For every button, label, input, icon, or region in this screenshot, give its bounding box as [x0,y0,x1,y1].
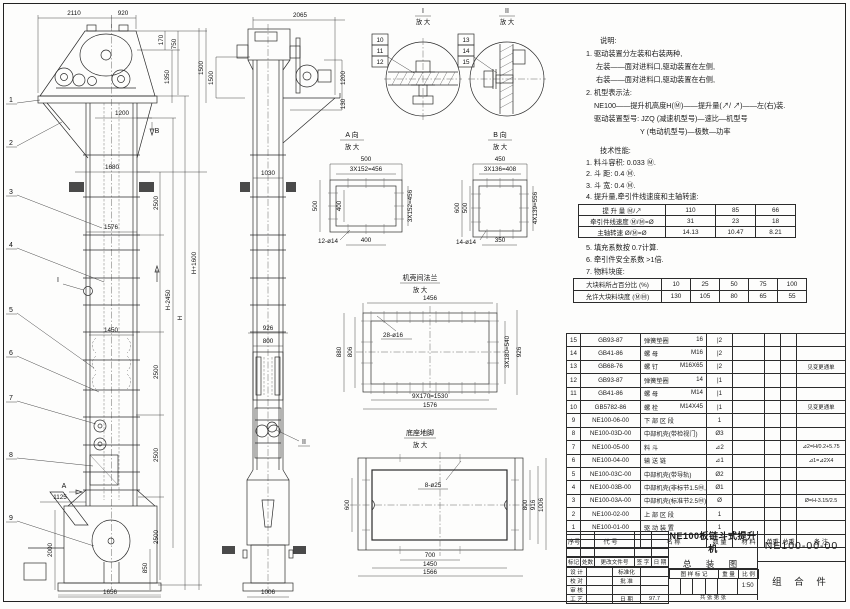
dim-label: 1456 [423,295,438,302]
mark-box [669,579,681,594]
bom-name: 螺 钉 [644,362,658,371]
bom-cell [797,387,846,400]
balloon-label: 12 [376,59,384,66]
tech-item: 5. 填充系数按 0.7计算. [586,242,664,254]
capacity-cell: 31 [666,216,716,227]
lump-cell: 100 [778,279,807,291]
dim-label: 3X152=456 [350,166,383,173]
rev-cell [581,532,595,540]
part-type-cell: 组 合 件 [758,562,845,600]
bom-cell: Ø2 [707,467,733,480]
rev-cell [595,532,635,540]
tech-item: 3. 斗 宽: 0.4 Ⓜ. [586,180,699,192]
bom-cell: 上 部 区 段 [641,508,707,521]
bom-cell [781,347,797,360]
bom-spec: M14X45 [680,403,703,412]
sig-value [641,577,669,586]
lump-cell: 25 [691,279,720,291]
dim-label: 9X170=1530 [412,393,448,400]
bom-cell [765,360,781,373]
dim-label: 3X136=408 [484,166,517,173]
capacity-cell: 66 [756,205,796,216]
sig-label: 工 艺 [567,595,587,604]
dim-label: 750 [171,38,178,49]
dim-label: 1200 [115,110,130,117]
stamp-cell: 重 量 [719,570,739,579]
bom-cell [797,374,846,387]
bom-cell: 8 [567,427,581,440]
bom-cell [733,467,765,480]
tech-item: 6. 牵引件安全系数 >1倍. [586,254,664,266]
dim-label: 500 [361,156,372,163]
balloon-label: 13 [462,37,470,44]
tech-section: 技术性能: 1. 料斗容积: 0.033 Ⓜ. 2. 斗 距: 0.4 Ⓜ. 3… [578,145,699,203]
bom-cell [797,481,846,494]
bom-cell [765,427,781,440]
balloon-label: 1 [9,97,13,104]
bom-cell [781,334,797,347]
bom-cell: 9 [567,414,581,427]
bom-cell [733,387,765,400]
lump-cell: 大块料所占百分比 (%) [574,279,662,291]
view-subtitle: 放 大 [493,142,508,151]
bom-cell [733,508,765,521]
sig-value [587,595,613,604]
dim-label: 880 [336,346,343,357]
section-marker-b: B [155,128,160,135]
bom-cell [781,508,797,521]
bom-cell: NE100-05-00 [581,441,641,454]
bom-cell [797,414,846,427]
bom-cell: GB68-76 [581,360,641,373]
bom-name: 弹簧垫圈 [644,336,669,345]
rev-cell [567,532,581,540]
dim-label: 920 [118,10,129,17]
bom-cell: 螺 钉M16X65 [641,360,707,373]
dim-label: 1350 [164,70,171,85]
bom-cell [765,467,781,480]
lump-size-table: 大块料所占百分比 (%) 10 25 50 75 100 允许大块料块度 (ⓂⓂ… [573,278,807,303]
notes-title: 说明: [600,34,846,47]
dim-label: 700 [425,552,436,559]
bom-spec: M14 [691,389,703,398]
sig-value [641,568,669,577]
bom-cell: NE100-06-00 [581,414,641,427]
dim-label: 400 [336,200,343,211]
sig-label: 批 准 [613,577,641,586]
bom-cell [781,400,797,413]
view-title: 机壳间法兰 [403,273,438,282]
bom-row: 5NE100-03C-00中部机壳(带导轨)Ø2 [567,467,846,480]
dim-label: H [177,315,184,320]
title-block: 标记 处数 更改文件号 签 字 日 期 设 计标准化 校 对批 准 审 核 工 … [566,531,845,600]
table-row: 牵引件线速度 Ⓜ/Ⓜ=Ø 31 23 18 [579,216,796,227]
bom-name: 弹簧垫圈 [644,376,669,385]
bom-cell: ⊿2 [707,441,733,454]
capacity-table: 提 升 量 Ⓜ/↗ 110 85 66 牵引件线速度 Ⓜ/Ⓜ=Ø 31 23 1… [578,204,796,238]
lump-cell: 130 [662,291,691,303]
detail-title: I [422,8,424,15]
signature-rows: 设 计标准化 校 对批 准 审 核 工 艺日 期97.7 [566,567,669,604]
bom-cell [781,374,797,387]
mark-box [706,579,717,594]
capacity-cell: 14.13 [666,227,716,238]
stamp-cell: 比 例 [739,570,759,579]
capacity-cell: 提 升 量 Ⓜ/↗ [579,205,666,216]
sig-value [587,568,613,577]
rev-header-cell: 更改文件号 [595,558,635,567]
view-subtitle: 放 大 [345,142,360,151]
bom-cell: 1 [707,508,733,521]
bom-spec: 14 [696,376,703,385]
dim-label: 2500 [153,365,160,380]
bom-cell: 5 [567,467,581,480]
rev-header-cell: 签 字 [635,558,652,567]
lump-cell: 允许大块料块度 (ⓂⓂ) [574,291,662,303]
capacity-cell: 主轴转速 Ø/Ⓜ=Ø [579,227,666,238]
rev-cell [635,548,652,556]
stamp-cell: 图 样 标 记 [670,570,719,579]
lump-cell: 75 [749,279,778,291]
detail-title: II [505,8,509,15]
title-block-left: 标记 处数 更改文件号 签 字 日 期 设 计标准化 校 对批 准 审 核 工 … [566,531,668,600]
title-block-right: NE100-00-00 组 合 件 [757,531,845,600]
bom-cell: 1 [707,414,733,427]
bom-cell: |2 [707,360,733,373]
dim-label: 3X152=456 [407,189,414,222]
bom-cell: |1 [707,374,733,387]
lump-cell: 55 [778,291,807,303]
note-line: 右装——面对进料口,驱动装置在右侧, [596,73,846,86]
bom-cell [765,508,781,521]
dim-label: 1200 [340,71,347,86]
hole-callout: 12-ø14 [318,238,338,245]
rev-cell [581,548,595,556]
product-title: NE100板链斗式提升机 [669,529,757,555]
bom-cell: GB93-87 [581,334,641,347]
bom-cell: NE100-03B-00 [581,481,641,494]
bom-cell: 7 [567,441,581,454]
bom-cell: Ø=H-3.15/2.5 [797,494,846,507]
note-line: 驱动装置型号: JZQ (减速机型号)—速比—机型号 [594,112,846,125]
scale-value: 1:50 [738,579,757,594]
note-line: 1. 驱动装置分左装和右装两种, [586,47,846,60]
bom-cell: |2 [707,334,733,347]
balloon-label: 15 [462,59,470,66]
bom-cell: GB93-87 [581,374,641,387]
sig-value [587,577,613,586]
sig-label [613,586,641,595]
bom-cell: 2 [567,508,581,521]
balloon-label: 6 [9,350,13,357]
bom-cell [733,427,765,440]
bom-cell [733,347,765,360]
revision-header: 标记 处数 更改文件号 签 字 日 期 [566,557,669,567]
bom-spec: 16 [696,336,703,345]
dim-label: 2500 [153,196,160,211]
bom-row: 7NE100-05-00料 斗⊿2⊿2=H/0.2+5.75 [567,441,846,454]
dim-label: 350 [495,237,506,244]
dim-label: 1450 [423,561,438,568]
bom-cell [733,374,765,387]
bom-cell: 中部机壳(非标节1.5Ⓜ,1Ⓜ) [641,481,707,494]
dim-label: 1576 [104,224,119,231]
bom-cell [781,481,797,494]
bom-cell: 6 [567,454,581,467]
bom-cell [797,508,846,521]
note-line: Y (电动机型号)—极数—功率 [640,125,846,138]
bom-cell: 15 [567,334,581,347]
bom-cell: ⊿2=H/0.2+5.75 [797,441,846,454]
balloon-label: 5 [9,307,13,314]
sheet-count: 共 张 第 张 [669,595,757,602]
bom-name: 料 斗 [644,443,658,452]
stamp-values: 1:50 [669,579,757,595]
table-row: 大块料所占百分比 (%) 10 25 50 75 100 [574,279,807,291]
dim-label: 500 [312,200,319,211]
bom-cell [797,334,846,347]
rev-header-cell: 处数 [581,558,595,567]
bom-cell [733,494,765,507]
balloon-label: 7 [9,395,13,402]
bom-cell: |1 [707,387,733,400]
bom-cell [781,360,797,373]
bom-name: 螺 母 [644,389,658,398]
detail-marker-ii: II [302,439,306,446]
tech-item: 1. 料斗容积: 0.033 Ⓜ. [586,157,699,169]
bom-cell: 螺 栓M14X45 [641,400,707,413]
lump-cell: 80 [720,291,749,303]
bom-cell [781,427,797,440]
bom-cell [797,467,846,480]
bom-name: 上 部 区 段 [644,510,674,519]
balloon-label: 14 [462,48,470,55]
dim-label: 1680 [105,164,120,171]
bom-cell [733,481,765,494]
dim-label: 1006 [538,498,545,513]
bom-cell [765,454,781,467]
bom-cell: GB5782-86 [581,400,641,413]
rev-cell [652,540,669,548]
hole-callout: 28-ø16 [383,332,403,339]
stamp-header: 图 样 标 记 重 量 比 例 [669,569,759,579]
revision-rows [566,531,669,557]
balloon-label: 8 [9,452,13,459]
bom-cell: |1 [707,400,733,413]
table-row: 提 升 量 Ⓜ/↗ 110 85 66 [579,205,796,216]
rev-cell [567,548,581,556]
bom-cell: NE100-03A-00 [581,494,641,507]
dim-label: 500 [462,202,469,213]
bom-cell [765,334,781,347]
bom-cell [781,414,797,427]
bom-cell: 3 [567,494,581,507]
dim-label: 2065 [293,12,308,19]
drawing-title-cell: NE100板链斗式提升机 总 装 图 [669,531,757,569]
dim-label: 1500 [198,61,205,76]
bom-cell: Ø1 [707,481,733,494]
dim-label: 170 [158,34,165,45]
weight-value [718,579,739,594]
dim-label: 2500 [153,448,160,463]
view-b: B 向 放 大 450 3X136=408 600 500 4X139=556 … [454,130,539,246]
mark-box [681,579,693,594]
rev-cell [635,532,652,540]
balloon-label: 9 [9,515,13,522]
dim-label: 1006 [261,589,276,596]
rev-cell [652,532,669,540]
dim-label: 450 [495,156,506,163]
balloon-label: 3 [9,189,13,196]
rev-header-cell: 日 期 [652,558,669,567]
balloon-label: 4 [9,242,13,249]
bom-cell [733,334,765,347]
view-subtitle: 放 大 [413,440,428,449]
bom-row: 14GB41-86螺 母M16|2 [567,347,846,360]
drawing-number: NE100-00-00 [765,540,838,552]
dim-label: 2110 [67,10,81,17]
table-row: 主轴转速 Ø/Ⓜ=Ø 14.13 10.47 8.21 [579,227,796,238]
bom-row: 4NE100-03B-00中部机壳(非标节1.5Ⓜ,1Ⓜ)Ø1 [567,481,846,494]
bom-cell: 螺 母M16 [641,347,707,360]
bom-cell: 中部机壳(带检视门) [641,427,707,440]
sig-label: 日 期 [613,595,641,604]
front-dimensions: 2110 920 170 750 1350 1500 1200 1680 157… [38,10,207,597]
capacity-cell: 23 [716,216,756,227]
dim-label: 800 [522,499,529,510]
hole-callout: 8-ø25 [425,482,442,489]
tech-section-2: 5. 填充系数按 0.7计算. 6. 牵引件安全系数 >1倍. 7. 物料块度: [578,242,664,278]
capacity-cell: 85 [716,205,756,216]
bom-row: 13GB68-76螺 钉M16X65|2见变更通单 [567,360,846,373]
dim-label: H-2450 [165,289,172,310]
sig-label: 审 核 [567,586,587,595]
bom-cell: 14 [567,347,581,360]
dim-label: 130 [340,98,347,109]
bom-cell: 4 [567,481,581,494]
bom-cell [797,347,846,360]
elevation-drawing: 2110 920 170 750 1350 1500 1200 1680 157… [0,0,562,609]
note-line: NE100——提升机高度H(Ⓜ)——提升量(↗/ ↗)——左(右)装. [594,99,846,112]
dim-label: 1500 [208,71,215,86]
bom-cell: 弹簧垫圈16 [641,334,707,347]
dim-label: 1125 [53,494,67,501]
bom-cell: Ø3 [707,427,733,440]
bom-spec: M16 [691,349,703,358]
bom-row: 12GB93-87弹簧垫圈14|1 [567,374,846,387]
bom-cell: 见变更通单 [797,400,846,413]
drawing-type: 总 装 图 [669,558,757,570]
drawing-sheet: 2110 920 170 750 1350 1500 1200 1680 157… [0,0,850,609]
detail-subtitle: 放 大 [416,17,431,26]
bom-cell: |2 [707,347,733,360]
bom-cell [765,494,781,507]
side-dimensions: 2065 1500 1200 130 1030 926 800 1006 II [208,12,347,597]
drawing-number-cell: NE100-00-00 [758,531,845,562]
bom-cell [733,360,765,373]
bom-name: 下 部 区 段 [644,416,674,425]
hole-callout: 14-ø14 [456,239,476,246]
bom-cell: 12 [567,374,581,387]
bom-cell: 输 送 链 [641,454,707,467]
title-block-middle: NE100板链斗式提升机 总 装 图 图 样 标 记 重 量 比 例 [668,531,757,600]
detail-ii: II 放 大 13 14 15 [458,8,546,116]
rev-cell [567,540,581,548]
rev-cell [635,540,652,548]
bom-cell: 13 [567,360,581,373]
bom-cell: GB41-86 [581,347,641,360]
bom-row: 2NE100-02-00上 部 区 段1 [567,508,846,521]
bom-cell [781,441,797,454]
bom-cell [781,454,797,467]
bom-cell [765,400,781,413]
rev-cell [581,540,595,548]
balloon-label: 10 [376,37,384,44]
flange-view: 机壳间法兰 放 大 1456 28-ø16 880 806 3X180=540 … [336,273,523,409]
tech-item: 4. 提升量,牵引件线速度和主轴转速: [586,191,699,203]
view-title: 底座地脚 [406,428,434,437]
bom-cell: 螺 母M14 [641,387,707,400]
part-type: 组 合 件 [772,574,831,588]
bom-cell: 下 部 区 段 [641,414,707,427]
bom-name: 中部机壳(非标节1.5Ⓜ,1Ⓜ) [644,483,707,492]
capacity-cell: 8.21 [756,227,796,238]
bom-cell: NE100-03D-00 [581,427,641,440]
base-view: 底座地脚 放 大 8-ø25 600 800 916 1006 700 1450… [344,428,546,576]
bom-row: 9NE100-06-00下 部 区 段1 [567,414,846,427]
bom-name: 螺 栓 [644,403,658,412]
bom-row: 10GB5782-86螺 栓M14X45|1见变更通单 [567,400,846,413]
dim-label: 3X180=540 [504,335,511,368]
sig-label: 校 对 [567,577,587,586]
bom-cell: ⊿1 [707,454,733,467]
bom-name: 中部机壳(带导轨) [644,470,691,479]
capacity-cell: 18 [756,216,796,227]
dim-label: 4X139=556 [532,191,539,224]
detail-i: I 放 大 10 11 12 [372,8,462,120]
sig-value [587,586,613,595]
sig-value [641,586,669,595]
bom-name: 螺 母 [644,349,658,358]
bom-cell [781,494,797,507]
bom-cell [765,347,781,360]
detail-subtitle: 放 大 [500,17,515,26]
bom-cell [797,427,846,440]
bom-name: 输 送 链 [644,456,666,465]
view-title: A 向 [345,130,358,139]
dim-label: 600 [344,499,351,510]
dim-label: 400 [361,237,372,244]
capacity-cell: 10.47 [716,227,756,238]
bom-cell [765,481,781,494]
bom-row: 6NE100-04-00输 送 链⊿1⊿1=⊿2X4 [567,454,846,467]
lump-cell: 50 [720,279,749,291]
bom-name: 中部机壳(带检视门) [644,429,698,438]
bom-row: 15GB93-87弹簧垫圈16|2 [567,334,846,347]
dim-label: 926 [263,325,274,332]
sig-value: 97.7 [641,595,669,604]
note-line: 2. 机型表示法: [586,86,846,99]
notes-section: 说明: 1. 驱动装置分左装和右装两种, 左装——面对进料口,驱动装置在左侧, … [578,34,846,138]
bom-cell: 11 [567,387,581,400]
bom-table: 15GB93-87弹簧垫圈16|2 14GB41-86螺 母M16|2 13GB… [566,333,846,548]
dim-label: 1030 [261,170,276,177]
mark-boxes [669,579,718,594]
sig-label: 标准化 [613,568,641,577]
bom-cell: GB41-86 [581,387,641,400]
bom-cell [733,400,765,413]
table-row: 允许大块料块度 (ⓂⓂ) 130 105 80 65 55 [574,291,807,303]
